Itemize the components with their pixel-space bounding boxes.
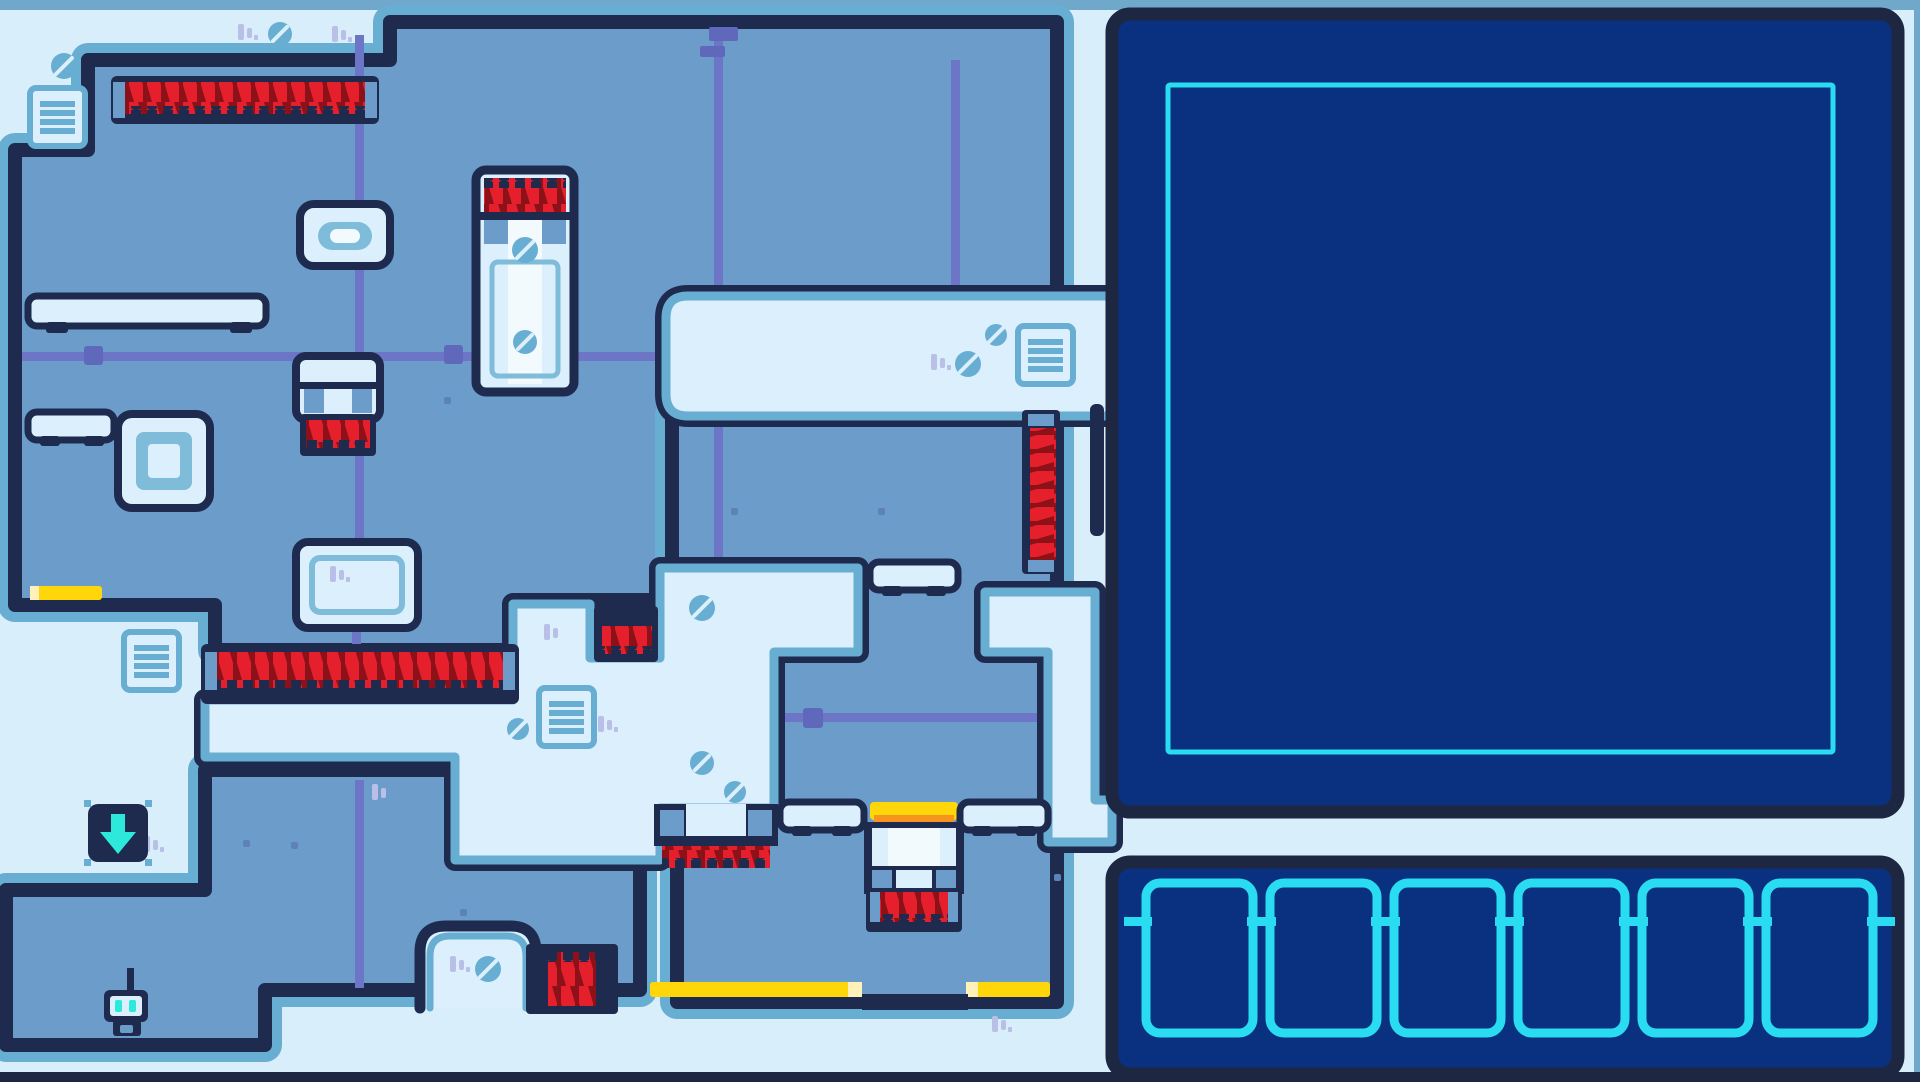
goal-strip-floor-left [650,982,862,997]
spike-strip-ceiling [111,76,379,124]
note-icon-corridor [1018,326,1073,384]
side-panel-slots [1112,862,1898,1074]
shaft-floor-spikes [654,804,778,868]
game-canvas [0,0,1920,1082]
down-arrow-button[interactable] [84,800,152,866]
spike-strip-long [201,644,519,704]
edge-wall-segment [1090,404,1104,536]
goal-strip-floor-right [966,982,1050,997]
ledge-small-left [28,412,114,446]
note-icon-central [539,688,594,746]
pill-door [300,204,390,266]
ledge-neck [870,562,958,596]
note-icon-top-left [30,88,85,146]
window-crate [296,542,418,628]
vent-dispenser [864,802,964,932]
floor-dip [862,994,968,1010]
spike-strip-wall [1022,410,1060,574]
piston-shaft [476,170,574,392]
goal-strip-left [30,586,102,600]
switch-block [118,414,210,508]
ledge-long [28,296,266,333]
note-icon-mid-left [124,632,179,690]
screen-edge-right [1914,0,1920,1082]
spike-strip-small [594,606,658,662]
side-panel-screen [1112,14,1898,812]
game-window [0,0,1920,1082]
ledge-vent-right [960,802,1048,836]
hanging-spike-crate [296,356,380,456]
ledge-vent-left [780,802,864,836]
floor-spike-pit [526,944,618,1014]
